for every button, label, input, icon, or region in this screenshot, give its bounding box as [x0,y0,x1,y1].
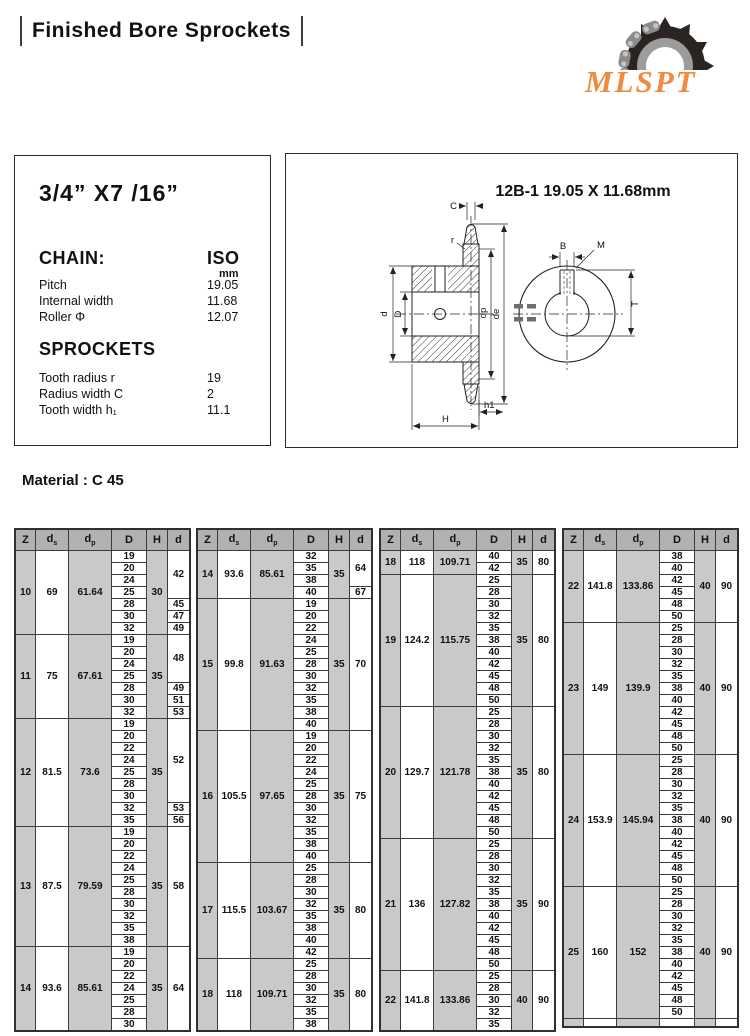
h-cell: 35 [512,839,533,971]
bore-cell: 19 [112,947,147,959]
col-header-H: H [147,529,168,551]
empty-cell [563,1019,584,1028]
bore-cell: 22 [112,743,147,755]
bore-cell: 32 [294,899,329,911]
col-header-D: D [112,529,147,551]
bore-cell: 32 [294,683,329,695]
h-cell: 35 [512,551,533,575]
h-cell: 35 [512,575,533,707]
bore-cell: 30 [112,791,147,803]
bore-cell: 28 [112,683,147,695]
ds-cell: 129.7 [401,707,434,839]
d-cell: 49 [168,683,191,695]
bore-cell: 35 [477,755,512,767]
dp-cell: 79.59 [69,827,112,947]
d-cell: 64 [168,947,191,1032]
h-cell: 35 [329,959,350,1032]
dim-label-b: B [560,241,566,252]
h-cell: 30 [147,551,168,635]
bore-cell: 45 [660,719,695,731]
bore-cell: 24 [112,983,147,995]
ds-cell: 141.8 [401,971,434,1032]
bore-cell: 40 [660,959,695,971]
bore-cell: 25 [660,887,695,899]
col-header-Z: Z [197,529,218,551]
bore-cell: 28 [477,587,512,599]
bore-cell: 35 [294,911,329,923]
bore-cell: 20 [112,731,147,743]
dp-cell: 109.71 [434,551,477,575]
empty-cell [617,1019,660,1028]
bore-cell: 40 [477,911,512,923]
ds-cell: 118 [218,959,251,1032]
col-header-Z: Z [563,529,584,551]
bore-cell: 20 [112,647,147,659]
dim-label-h1: h1 [484,400,495,411]
bore-cell: 19 [112,719,147,731]
bore-cell: 42 [660,707,695,719]
d-cell: 80 [533,707,556,839]
col-header-d: d [533,529,556,551]
ds-cell: 141.8 [584,551,617,623]
bore-cell: 48 [660,995,695,1007]
dim-label-t: T [630,301,641,307]
z-cell: 11 [15,635,36,719]
dim-label-r: r [451,235,454,246]
company-logo: MLSPT [583,8,735,100]
d-cell: 49 [168,623,191,635]
col-header-ds: ds [218,529,251,551]
material-label: Material : C 45 [22,472,124,489]
bore-cell: 38 [294,923,329,935]
dp-cell: 85.61 [69,947,112,1032]
bore-cell: 35 [660,935,695,947]
z-cell: 18 [380,551,401,575]
dp-cell: 139.9 [617,623,660,755]
bore-cell: 25 [477,575,512,587]
bore-cell: 40 [477,647,512,659]
bore-cell: 35 [477,1019,512,1032]
dim-label-d: d [379,311,390,316]
bore-cell: 22 [112,851,147,863]
col-header-dp: dp [617,529,660,551]
d-cell: 45 [168,599,191,611]
empty-cell [660,1019,695,1028]
d-cell: 90 [716,755,739,887]
bore-cell: 25 [112,671,147,683]
bore-cell: 42 [477,791,512,803]
bore-cell: 45 [660,587,695,599]
spec-label: Internal width [39,294,113,308]
bore-cell: 48 [660,863,695,875]
ds-cell: 75 [36,635,69,719]
bore-cell: 19 [294,599,329,611]
d-cell: 51 [168,695,191,707]
h-cell: 35 [147,635,168,719]
h-cell: 35 [329,863,350,959]
bore-cell: 32 [112,803,147,815]
col-header-ds: ds [401,529,434,551]
z-cell: 19 [380,575,401,707]
spec-label: Radius width C [39,387,123,401]
z-cell: 20 [380,707,401,839]
h-cell: 35 [329,551,350,599]
bore-cell: 30 [294,803,329,815]
z-cell: 10 [15,551,36,635]
bore-cell: 28 [477,719,512,731]
bore-cell: 25 [294,779,329,791]
bore-cell: 30 [294,671,329,683]
bore-cell: 32 [477,875,512,887]
sprocket-table-2: ZdsdpDHd1493.685.61323564353840671599.89… [196,528,373,1032]
bore-cell: 24 [112,575,147,587]
d-cell: 58 [168,827,191,947]
bore-cell: 40 [294,719,329,731]
spec-label: Tooth radius r [39,371,115,385]
bore-cell: 48 [660,599,695,611]
dp-cell: 133.86 [434,971,477,1032]
bore-cell: 25 [112,767,147,779]
sprocket-chain-logo-icon: MLSPT [583,8,735,100]
bore-cell: 35 [294,695,329,707]
header: Finished Bore Sprockets [20,16,303,46]
bore-cell: 42 [294,947,329,959]
h-cell: 40 [695,623,716,755]
sprocket-table-4: ZdsdpDHd22141.8133.863840904042454850231… [562,528,739,1028]
dp-cell: 115.75 [434,575,477,707]
z-cell: 24 [563,755,584,887]
bore-cell: 19 [112,551,147,563]
bore-cell: 30 [477,731,512,743]
bore-cell: 42 [477,659,512,671]
bore-cell: 28 [112,599,147,611]
bore-cell: 28 [294,875,329,887]
bore-cell: 22 [294,623,329,635]
spec-value: 11.68 [207,294,237,308]
bore-cell: 50 [660,743,695,755]
bore-cell: 40 [294,587,329,599]
d-cell: 90 [533,839,556,971]
bore-cell: 30 [477,863,512,875]
sprocket-table-1: ZdsdpDHd106961.6419304220242528453047324… [14,528,191,1032]
spec-value: 19.05 [207,278,238,292]
bore-cell: 30 [112,1019,147,1032]
z-cell: 18 [197,959,218,1032]
d-cell: 56 [168,815,191,827]
bore-cell: 25 [294,959,329,971]
bore-cell: 32 [112,623,147,635]
bore-cell: 20 [112,839,147,851]
bore-cell: 38 [660,683,695,695]
h-cell: 40 [512,971,533,1032]
bore-cell: 38 [477,635,512,647]
d-cell: 52 [168,719,191,803]
d-cell: 48 [168,635,191,683]
spec-row: Roller Φ 12.07 [39,310,257,324]
bore-cell: 32 [112,911,147,923]
col-header-d: d [716,529,739,551]
z-cell: 16 [197,731,218,863]
ds-cell: 115.5 [218,863,251,959]
d-cell: 70 [350,599,373,731]
d-cell: 80 [533,575,556,707]
d-cell: 90 [716,887,739,1019]
bore-cell: 35 [112,815,147,827]
bore-cell: 38 [294,707,329,719]
bore-cell: 20 [112,563,147,575]
bore-cell: 35 [294,563,329,575]
dim-label-de: de [491,309,502,320]
d-cell: 90 [533,971,556,1032]
col-header-D: D [660,529,695,551]
bore-cell: 20 [112,959,147,971]
bore-cell: 32 [294,551,329,563]
bore-cell: 25 [477,971,512,983]
ds-cell: 153.9 [584,755,617,887]
bore-cell: 42 [660,971,695,983]
bore-cell: 30 [294,887,329,899]
bore-cell: 25 [294,863,329,875]
bore-cell: 38 [477,899,512,911]
bore-cell: 32 [660,923,695,935]
z-cell: 14 [15,947,36,1032]
page-title: Finished Bore Sprockets [32,19,291,43]
ds-cell: 93.6 [36,947,69,1032]
unit-heading: ISO [207,248,240,269]
dim-label-m: M [597,240,605,251]
h-cell: 35 [147,947,168,1032]
dp-cell: 97.65 [251,731,294,863]
chain-heading: CHAIN: [39,248,105,269]
spec-value: 11.1 [207,403,230,417]
technical-drawing-panel: 12B-1 19.05 X 11.68mm [285,153,738,448]
empty-cell [695,1019,716,1028]
z-cell: 17 [197,863,218,959]
h-cell: 35 [147,827,168,947]
bore-cell: 19 [112,635,147,647]
spec-row: Tooth radius r 19 [39,371,257,385]
h-cell: 40 [695,755,716,887]
bore-cell: 28 [294,971,329,983]
dp-cell: 152 [617,887,660,1019]
bore-cell: 32 [477,743,512,755]
bore-cell: 32 [294,995,329,1007]
bore-cell: 28 [294,659,329,671]
ds-cell: 69 [36,551,69,635]
spec-value: 2 [207,387,214,401]
bore-cell: 50 [660,611,695,623]
bore-cell: 32 [660,659,695,671]
bore-cell: 45 [477,935,512,947]
dp-cell: 103.67 [251,863,294,959]
bore-cell: 48 [477,947,512,959]
d-cell: 67 [350,587,373,599]
ds-cell: 136 [401,839,434,971]
bore-cell: 20 [294,611,329,623]
bore-cell: 40 [660,563,695,575]
spec-label: Roller Φ [39,310,85,324]
bore-cell: 38 [112,935,147,947]
spec-row: Pitch 19.05 [39,278,257,292]
bore-cell: 40 [294,935,329,947]
bore-cell: 38 [477,767,512,779]
col-header-D: D [294,529,329,551]
bore-cell: 50 [477,695,512,707]
d-cell: 42 [168,551,191,599]
col-header-Z: Z [15,529,36,551]
bore-cell: 35 [660,803,695,815]
bore-cell: 40 [660,695,695,707]
dim-label-dp: dp [478,308,489,319]
bore-cell: 38 [294,575,329,587]
bore-cell: 38 [294,839,329,851]
bore-cell: 50 [477,959,512,971]
bore-cell: 40 [477,551,512,563]
bore-cell: 28 [112,1007,147,1019]
bore-cell: 20 [294,743,329,755]
chain-size-title: 3/4” X7 /16” [39,180,179,207]
bore-cell: 22 [294,755,329,767]
bore-cell: 25 [477,707,512,719]
dp-cell: 91.63 [251,599,294,731]
col-header-dp: dp [69,529,112,551]
bore-cell: 45 [477,803,512,815]
d-cell: 80 [533,551,556,575]
bore-cell: 25 [660,623,695,635]
dp-cell: 109.71 [251,959,294,1032]
spec-label: Pitch [39,278,67,292]
d-cell: 90 [716,551,739,623]
bore-cell: 25 [112,875,147,887]
ds-cell: 124.2 [401,575,434,707]
bore-cell: 28 [112,779,147,791]
bore-cell: 48 [477,815,512,827]
bore-cell: 48 [660,731,695,743]
z-cell: 13 [15,827,36,947]
bore-cell: 30 [477,995,512,1007]
ds-cell: 87.5 [36,827,69,947]
bore-cell: 42 [477,563,512,575]
bore-cell: 24 [112,863,147,875]
spec-row: Internal width 11.68 [39,294,257,308]
spec-value: 12.07 [207,310,238,324]
z-cell: 14 [197,551,218,599]
bore-cell: 25 [660,755,695,767]
h-cell: 40 [695,551,716,623]
bore-cell: 28 [477,983,512,995]
bore-cell: 30 [294,983,329,995]
dp-cell: 67.61 [69,635,112,719]
bore-cell: 30 [660,779,695,791]
spec-row: Radius width C 2 [39,387,257,401]
col-header-dp: dp [251,529,294,551]
ds-cell: 105.5 [218,731,251,863]
bore-cell: 22 [112,971,147,983]
bore-cell: 28 [660,899,695,911]
bore-cell: 35 [112,923,147,935]
spec-label: Tooth width h₁ [39,403,117,417]
d-cell: 80 [350,959,373,1032]
bore-cell: 30 [112,899,147,911]
bore-cell: 35 [294,1007,329,1019]
empty-cell [716,1019,739,1028]
col-header-dp: dp [434,529,477,551]
bore-cell: 40 [294,851,329,863]
bore-cell: 45 [477,671,512,683]
ds-cell: 81.5 [36,719,69,827]
bore-cell: 48 [477,683,512,695]
bore-cell: 35 [294,827,329,839]
bore-cell: 38 [660,815,695,827]
col-header-H: H [512,529,533,551]
bore-cell: 32 [112,707,147,719]
z-cell: 21 [380,839,401,971]
z-cell: 22 [563,551,584,623]
h-cell: 35 [329,731,350,863]
d-cell: 53 [168,707,191,719]
bore-cell: 35 [477,623,512,635]
sprockets-heading: SPROCKETS [39,339,156,360]
z-cell: 25 [563,887,584,1019]
sprocket-drawing: 12B-1 19.05 X 11.68mm [286,154,736,446]
dp-cell: 73.6 [69,719,112,827]
bore-cell: 50 [660,875,695,887]
dim-label-c: C [450,201,457,212]
bore-cell: 42 [660,839,695,851]
bore-cell: 42 [660,575,695,587]
bore-cell: 28 [660,635,695,647]
col-header-d: d [168,529,191,551]
logo-text: MLSPT [584,64,697,99]
h-cell: 35 [147,719,168,827]
col-header-d: d [350,529,373,551]
z-cell: 22 [380,971,401,1032]
h-cell: 40 [695,887,716,1019]
title-left-bar [20,16,22,46]
z-cell: 23 [563,623,584,755]
col-header-H: H [695,529,716,551]
d-cell: 80 [350,863,373,959]
col-header-Z: Z [380,529,401,551]
dp-cell: 121.78 [434,707,477,839]
bore-cell: 35 [477,887,512,899]
bore-cell: 30 [477,599,512,611]
bore-cell: 30 [112,611,147,623]
bore-cell: 38 [660,947,695,959]
col-header-ds: ds [36,529,69,551]
catalog-page: { "header": { "title": "Finished Bore Sp… [0,0,750,1036]
d-cell: 90 [716,623,739,755]
dim-label-D: D [393,310,404,317]
title-right-bar [301,16,303,46]
sprocket-table-3: ZdsdpDHd18118109.714035804219124.2115.75… [379,528,556,1032]
bore-cell: 28 [294,791,329,803]
col-header-H: H [329,529,350,551]
bore-cell: 24 [294,767,329,779]
bore-cell: 30 [112,695,147,707]
spec-value: 19 [207,371,221,385]
bore-cell: 45 [660,851,695,863]
bore-cell: 50 [477,827,512,839]
d-cell: 75 [350,731,373,863]
z-cell: 12 [15,719,36,827]
h-cell: 35 [329,599,350,731]
d-cell: 64 [350,551,373,587]
bore-cell: 42 [477,923,512,935]
bore-cell: 35 [660,671,695,683]
col-header-D: D [477,529,512,551]
dp-cell: 85.61 [251,551,294,599]
